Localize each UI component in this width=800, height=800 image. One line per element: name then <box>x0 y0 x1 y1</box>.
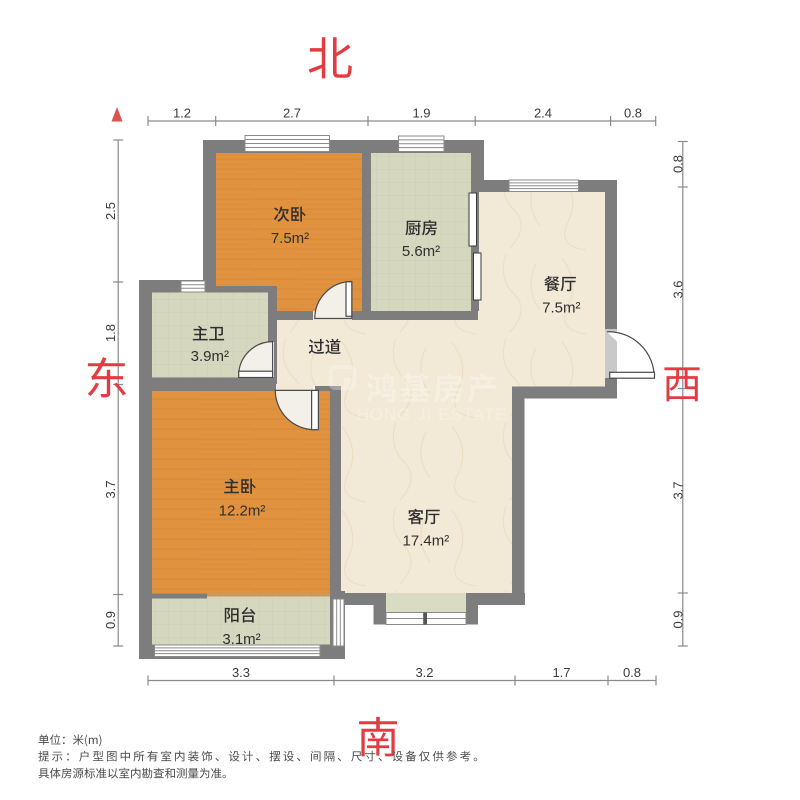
svg-text:5.6m²: 5.6m² <box>402 243 440 260</box>
svg-text:2.7: 2.7 <box>283 106 301 121</box>
svg-text:12.2m²: 12.2m² <box>219 503 266 520</box>
svg-text:0.9: 0.9 <box>670 610 685 628</box>
svg-text:0.8: 0.8 <box>624 106 642 121</box>
svg-text:3.2: 3.2 <box>415 665 433 680</box>
svg-text:3.1m²: 3.1m² <box>222 631 260 648</box>
svg-text:3.3: 3.3 <box>232 665 250 680</box>
svg-text:17.4m²: 17.4m² <box>403 533 450 550</box>
svg-text:1.9: 1.9 <box>412 106 430 121</box>
svg-text:2.5: 2.5 <box>103 202 118 220</box>
svg-text:0.8: 0.8 <box>670 155 685 173</box>
svg-text:0.9: 0.9 <box>103 611 118 629</box>
svg-text:3.9m²: 3.9m² <box>191 348 229 365</box>
svg-text:1.7: 1.7 <box>552 665 570 680</box>
svg-text:1.2: 1.2 <box>173 106 191 121</box>
svg-text:3.7: 3.7 <box>670 481 685 499</box>
svg-text:3.7: 3.7 <box>103 480 118 498</box>
svg-text:HONG JI ESTATE: HONG JI ESTATE <box>356 405 507 424</box>
svg-text:7.5m²: 7.5m² <box>271 230 309 247</box>
svg-text:7.5m²: 7.5m² <box>542 300 580 317</box>
svg-text:0.8: 0.8 <box>623 665 641 680</box>
svg-text:2.4: 2.4 <box>534 106 552 121</box>
svg-text:1.8: 1.8 <box>103 324 118 342</box>
svg-text:3.6: 3.6 <box>670 280 685 298</box>
